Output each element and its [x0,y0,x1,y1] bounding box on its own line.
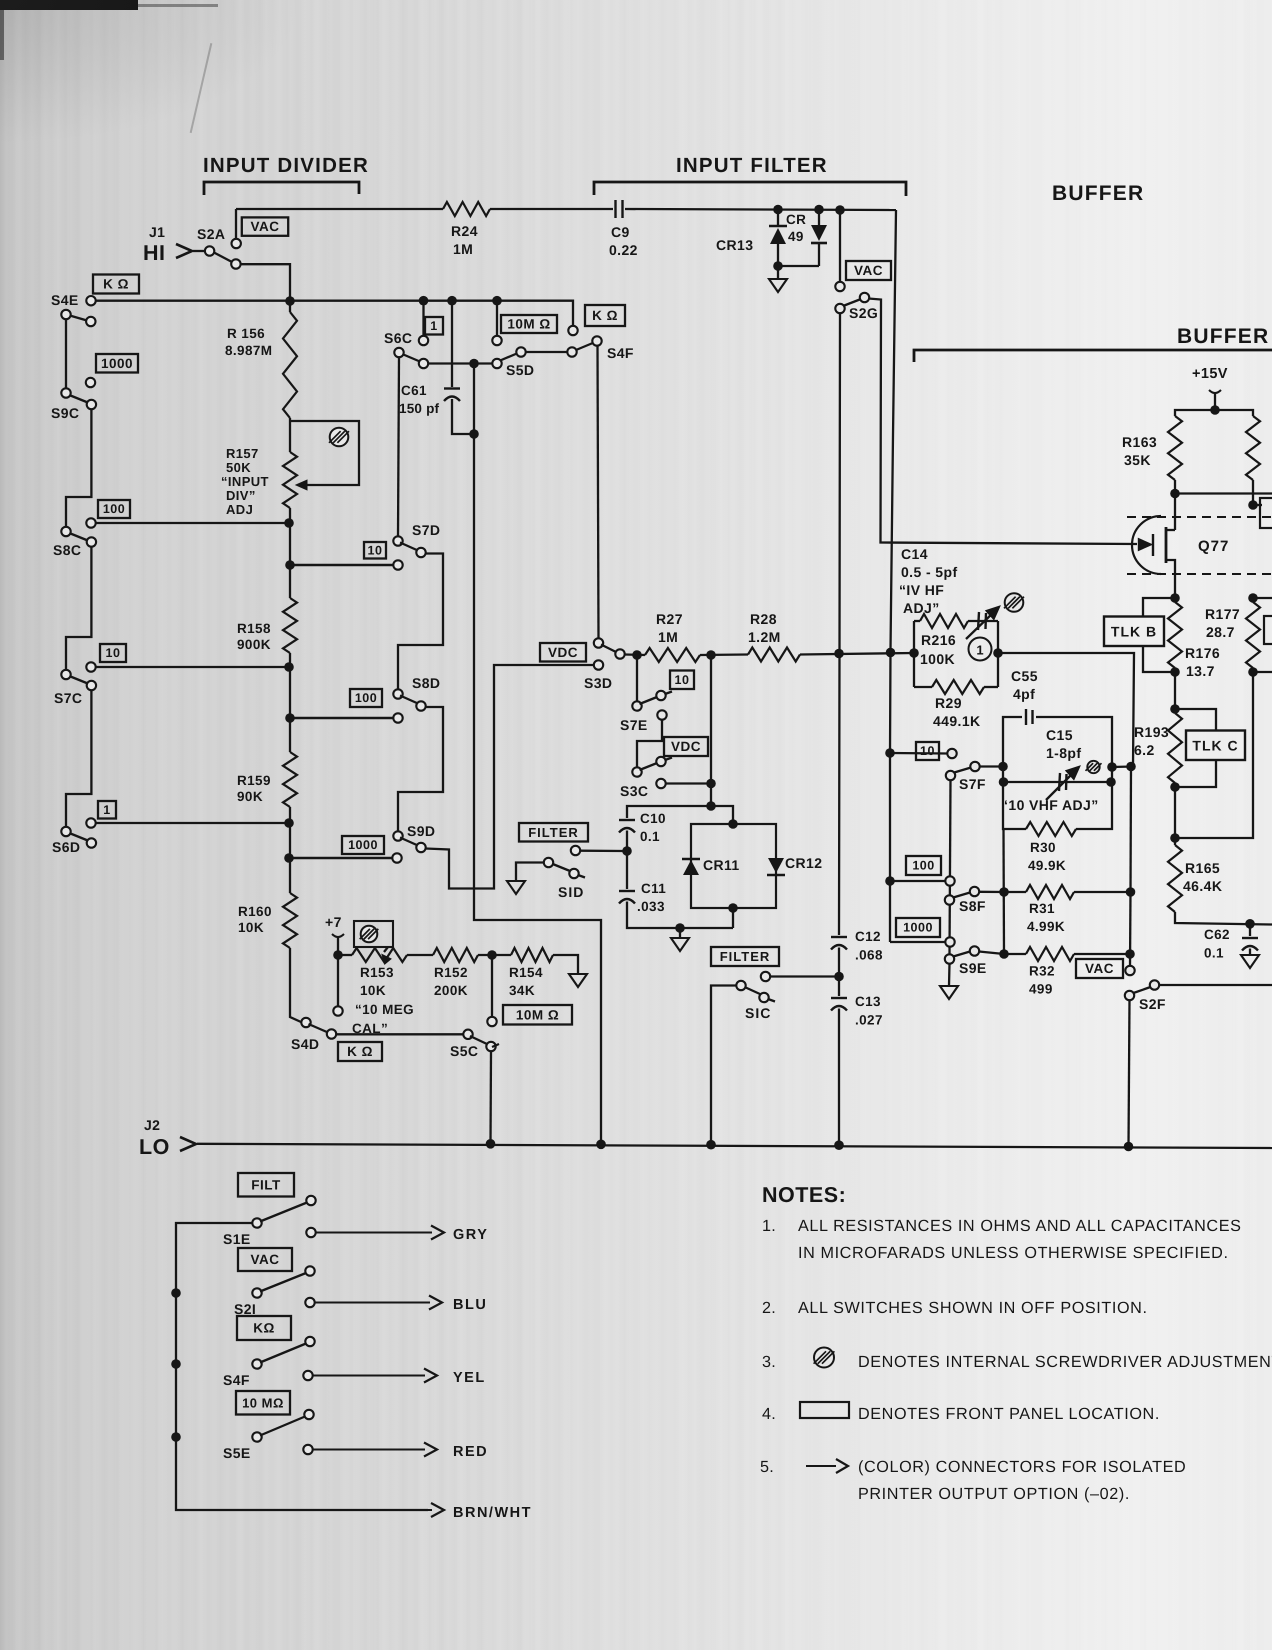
svg-text:“INPUT: “INPUT [221,474,269,489]
svg-text:“10 MEG: “10 MEG [355,1002,414,1017]
svg-text:49: 49 [788,229,804,244]
svg-text:CR12: CR12 [785,855,822,871]
svg-text:TLK C: TLK C [1192,737,1238,753]
svg-text:C9: C9 [611,224,630,240]
svg-text:SID: SID [558,884,584,900]
svg-text:R216: R216 [921,632,956,648]
svg-text:150 pf: 150 pf [399,401,440,416]
svg-text:BLU: BLU [453,1297,487,1313]
svg-text:R158: R158 [237,621,271,636]
svg-text:R29: R29 [935,695,962,711]
svg-text:10M Ω: 10M Ω [507,317,550,332]
svg-text:90K: 90K [237,789,263,804]
svg-text:100K: 100K [920,651,955,667]
svg-text:28.7: 28.7 [1206,624,1235,640]
svg-text:1: 1 [430,319,437,333]
svg-text:RED: RED [453,1444,488,1460]
svg-text:VAC: VAC [854,263,883,278]
svg-text:S8D: S8D [412,675,440,691]
svg-text:ADJ”: ADJ” [903,600,940,616]
svg-text:1M: 1M [658,629,678,645]
svg-text:C62: C62 [1204,927,1230,942]
svg-text:C61: C61 [401,383,427,398]
svg-text:S5E: S5E [223,1445,251,1461]
svg-text:PRINTER OUTPUT OPTION (–02).: PRINTER OUTPUT OPTION (–02). [858,1485,1130,1503]
svg-text:S2A: S2A [197,226,225,242]
svg-text:R160: R160 [238,904,272,919]
svg-text:R152: R152 [434,965,468,980]
svg-text:100: 100 [103,502,125,516]
svg-text:1M: 1M [453,241,473,257]
svg-text:R154: R154 [509,965,543,980]
svg-text:C55: C55 [1011,668,1038,684]
svg-text:DENOTES FRONT PANEL LOCATION.: DENOTES FRONT PANEL LOCATION. [858,1405,1160,1423]
svg-text:R157: R157 [226,446,259,461]
svg-text:1000: 1000 [348,838,378,852]
svg-text:NOTES:: NOTES: [762,1183,846,1207]
svg-text:VAC: VAC [1085,961,1114,976]
svg-text:VDC: VDC [671,739,701,754]
svg-text:YEL: YEL [453,1370,486,1386]
svg-text:S6D: S6D [52,839,80,855]
svg-text:S2F: S2F [1139,996,1166,1012]
svg-text:K Ω: K Ω [103,277,129,292]
svg-text:R24: R24 [451,223,478,239]
svg-text:R165: R165 [1185,860,1220,876]
svg-text:VAC: VAC [250,219,279,234]
svg-text:S1E: S1E [223,1231,251,1247]
svg-text:S7E: S7E [620,717,648,733]
svg-text:VAC: VAC [250,1252,279,1267]
svg-text:10 MΩ: 10 MΩ [242,1395,284,1410]
svg-text:GRY: GRY [453,1227,488,1243]
svg-text:S3C: S3C [620,783,648,799]
svg-text:2.: 2. [762,1299,776,1317]
svg-text:R32: R32 [1029,964,1055,979]
svg-text:1-8pf: 1-8pf [1046,745,1081,761]
svg-text:C13: C13 [855,994,881,1009]
svg-text:TLK B: TLK B [1111,623,1157,639]
svg-text:S7C: S7C [54,690,82,706]
svg-text:R176: R176 [1185,645,1220,661]
svg-text:R193: R193 [1134,724,1169,740]
svg-text:S6C: S6C [384,330,412,346]
svg-text:35K: 35K [1124,452,1151,468]
svg-text:S5D: S5D [506,362,534,378]
svg-text:100: 100 [355,691,377,705]
svg-text:R27: R27 [656,611,683,627]
svg-text:SIC: SIC [745,1005,771,1021]
svg-text:+7: +7 [325,914,342,930]
svg-text:R177: R177 [1205,606,1240,622]
svg-text:R31: R31 [1029,901,1055,916]
svg-text:HI: HI [143,241,166,265]
svg-text:1000: 1000 [903,921,933,935]
svg-text:J1: J1 [149,224,165,240]
svg-text:R159: R159 [237,773,271,788]
svg-text:CR: CR [786,212,806,227]
svg-text:IN MICROFARADS UNLESS OTHERWIS: IN MICROFARADS UNLESS OTHERWISE SPECIFIE… [798,1244,1229,1262]
svg-text:1000: 1000 [101,356,133,371]
svg-text:13.7: 13.7 [1186,663,1215,679]
svg-text:LO: LO [139,1135,170,1159]
svg-text:10K: 10K [360,983,386,998]
svg-text:R163: R163 [1122,434,1157,450]
svg-text:S9D: S9D [407,823,435,839]
svg-text:S7D: S7D [412,522,440,538]
svg-text:900K: 900K [237,637,271,652]
svg-text:C14: C14 [901,546,928,562]
svg-text:S2I: S2I [234,1301,256,1317]
svg-text:0.1: 0.1 [1204,946,1224,961]
svg-text:S2G: S2G [849,305,878,321]
svg-text:4pf: 4pf [1013,686,1035,702]
svg-text:10: 10 [920,744,935,758]
svg-text:BUFFER: BUFFER [1177,325,1269,348]
svg-text:Q77: Q77 [1198,538,1229,555]
svg-text:VDC: VDC [548,645,578,660]
svg-text:50K: 50K [226,460,251,475]
svg-text:INPUT FILTER: INPUT FILTER [676,154,828,177]
svg-text:10: 10 [675,673,690,687]
svg-text:4.: 4. [762,1405,776,1423]
svg-text:FILTER: FILTER [720,949,771,964]
svg-text:DENOTES INTERNAL SCREWDRIVER A: DENOTES INTERNAL SCREWDRIVER ADJUSTMENT [858,1353,1272,1371]
svg-text:8.987M: 8.987M [225,343,272,358]
svg-text:6.2: 6.2 [1134,742,1155,758]
svg-text:“IV HF: “IV HF [899,582,944,598]
svg-text:S9E: S9E [959,960,987,976]
svg-text:.027: .027 [855,1013,883,1028]
svg-text:DIV”: DIV” [226,488,256,503]
svg-text:ALL SWITCHES SHOWN IN OFF POSI: ALL SWITCHES SHOWN IN OFF POSITION. [798,1299,1148,1317]
svg-text:.033: .033 [637,899,665,914]
svg-text:CR11: CR11 [703,857,740,873]
svg-text:10M Ω: 10M Ω [516,1007,559,1022]
svg-text:K Ω: K Ω [347,1044,373,1059]
svg-text:49.9K: 49.9K [1028,858,1066,873]
svg-text:R30: R30 [1030,840,1056,855]
svg-text:5.: 5. [760,1458,774,1476]
svg-text:.068: .068 [855,948,883,963]
svg-text:CR13: CR13 [716,237,753,253]
svg-text:449.1K: 449.1K [933,713,981,729]
svg-text:499: 499 [1029,982,1053,997]
svg-text:S7F: S7F [959,776,986,792]
svg-text:1.: 1. [762,1217,776,1235]
svg-text:+15V: +15V [1192,366,1228,382]
svg-text:S9C: S9C [51,405,79,421]
svg-text:BRN/WHT: BRN/WHT [453,1505,532,1521]
svg-text:4.99K: 4.99K [1027,919,1065,934]
svg-text:1.2M: 1.2M [748,629,781,645]
svg-text:ALL RESISTANCES IN OHMS AND AL: ALL RESISTANCES IN OHMS AND ALL CAPACITA… [798,1217,1241,1235]
svg-text:S8C: S8C [53,542,81,558]
svg-text:J2: J2 [144,1117,160,1133]
svg-text:S5C: S5C [450,1043,478,1059]
svg-text:INPUT DIVIDER: INPUT DIVIDER [203,154,369,177]
svg-text:10: 10 [368,543,383,557]
svg-text:0.1: 0.1 [640,829,660,844]
svg-text:C15: C15 [1046,727,1073,743]
svg-text:1: 1 [103,803,110,817]
svg-text:S8F: S8F [959,898,986,914]
svg-text:S4D: S4D [291,1036,319,1052]
svg-text:R 156: R 156 [227,326,265,341]
svg-text:S4E: S4E [51,292,79,308]
svg-text:ADJ: ADJ [226,502,253,517]
svg-text:S4F: S4F [607,345,634,361]
svg-text:(COLOR) CONNECTORS FOR ISOLATE: (COLOR) CONNECTORS FOR ISOLATED [858,1458,1186,1476]
svg-text:C12: C12 [855,929,881,944]
svg-text:200K: 200K [434,983,468,998]
svg-text:46.4K: 46.4K [1183,878,1222,894]
svg-text:100: 100 [912,859,934,873]
svg-text:C10: C10 [640,811,666,826]
svg-text:0.22: 0.22 [609,242,638,258]
svg-text:FILTER: FILTER [528,825,579,840]
svg-text:10: 10 [106,646,121,660]
svg-text:S4F: S4F [223,1372,250,1388]
svg-text:3.: 3. [762,1353,776,1371]
svg-text:FILT: FILT [251,1177,281,1192]
svg-text:S3D: S3D [584,675,612,691]
svg-text:0.5 - 5pf: 0.5 - 5pf [901,564,958,580]
svg-text:R28: R28 [750,611,777,627]
svg-text:R153: R153 [360,965,394,980]
svg-text:1: 1 [976,643,983,658]
svg-text:KΩ: KΩ [253,1321,275,1336]
svg-text:C11: C11 [641,881,666,896]
svg-text:34K: 34K [509,983,535,998]
svg-text:“10 VHF ADJ”: “10 VHF ADJ” [1001,797,1099,813]
svg-text:10K: 10K [238,920,264,935]
svg-text:K Ω: K Ω [592,308,618,323]
svg-text:BUFFER: BUFFER [1052,182,1144,205]
